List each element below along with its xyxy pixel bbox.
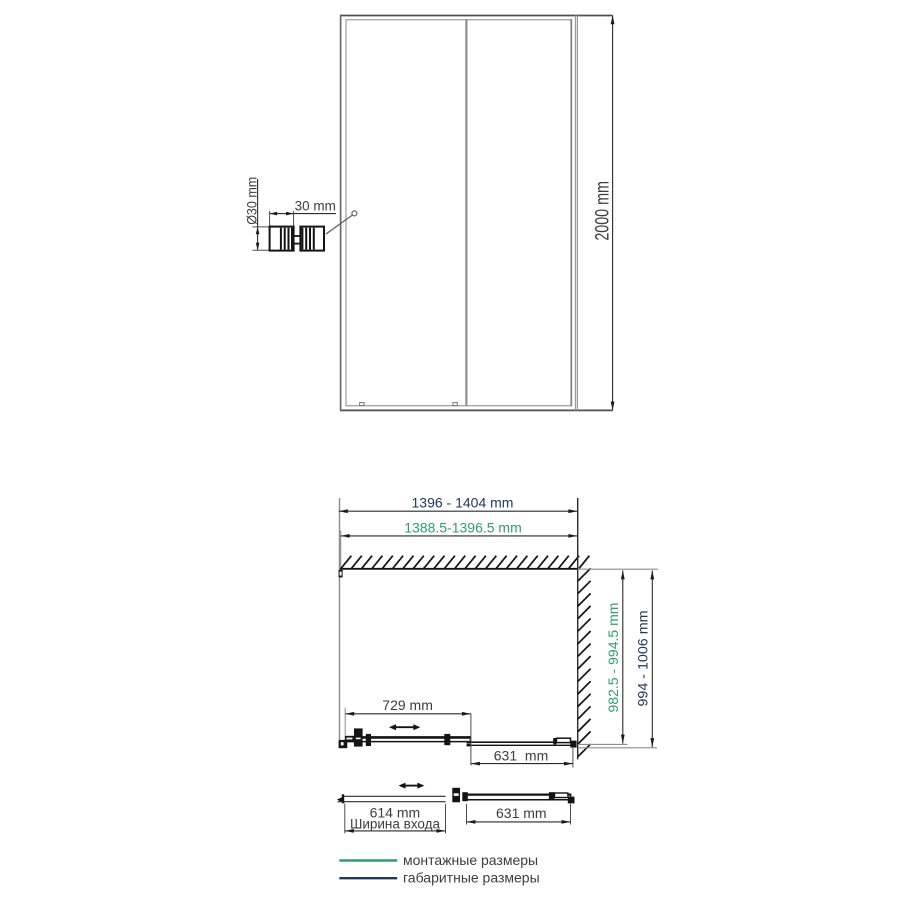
- svg-text:Ширина входа: Ширина входа: [350, 816, 441, 831]
- svg-text:габаритные размеры: габаритные размеры: [403, 870, 540, 886]
- svg-text:729 mm: 729 mm: [382, 697, 433, 713]
- svg-text:монтажные размеры: монтажные размеры: [403, 852, 538, 868]
- svg-text:30 mm: 30 mm: [295, 199, 336, 214]
- svg-text:994 - 1006 mm: 994 - 1006 mm: [635, 611, 651, 707]
- svg-text:982.5 - 994.5 mm: 982.5 - 994.5 mm: [605, 603, 621, 713]
- svg-text:631 mm: 631 mm: [496, 805, 547, 821]
- svg-text:1388.5-1396.5 mm: 1388.5-1396.5 mm: [404, 519, 522, 535]
- svg-text:1396 - 1404 mm: 1396 - 1404 mm: [412, 495, 514, 511]
- svg-text:631 mm: 631 mm: [494, 747, 548, 763]
- svg-text:2000 mm: 2000 mm: [593, 181, 614, 241]
